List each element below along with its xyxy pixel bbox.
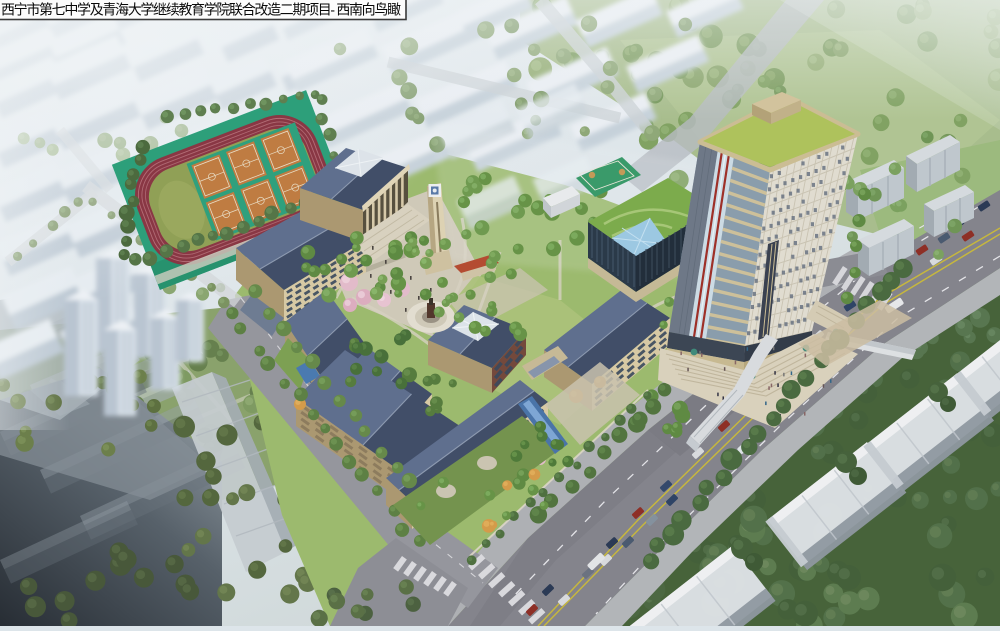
svg-text:西宁市第七中学及青海大学继续教育学院联合改造二期项目- 西南: 西宁市第七中学及青海大学继续教育学院联合改造二期项目- 西南向鸟瞰 bbox=[1, 2, 401, 18]
